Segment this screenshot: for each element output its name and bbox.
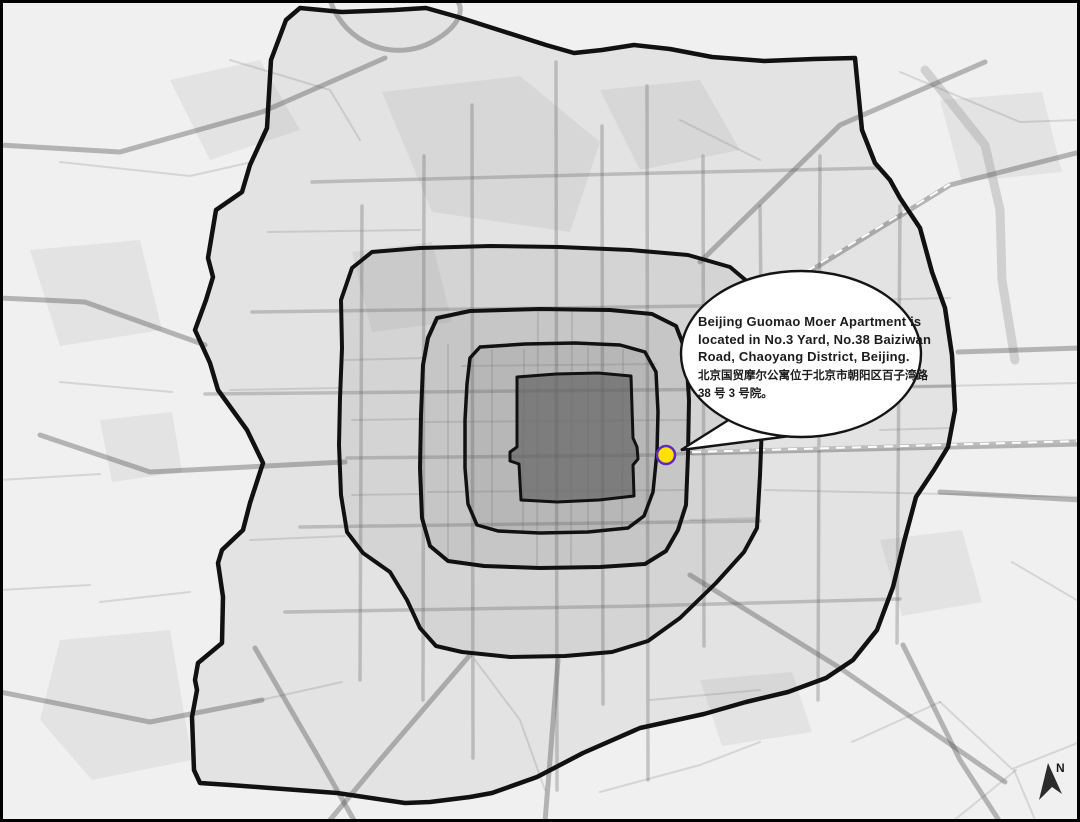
callout-text-line: located in No.3 Yard, No.38 Baiziwan: [698, 332, 931, 347]
callout-text-line: 38 号 3 号院。: [698, 386, 773, 400]
callout-text-line: Beijing Guomao Moer Apartment is: [698, 314, 921, 329]
map-canvas: Beijing Guomao Moer Apartment is located…: [0, 0, 1080, 822]
location-marker: [657, 446, 675, 464]
callout-text-line: 北京国贸摩尔公寓位于北京市朝阳区百子湾路: [698, 368, 928, 382]
callout-text-line: Road, Chaoyang District, Beijing.: [698, 349, 910, 364]
north-arrow-label: N: [1056, 761, 1065, 775]
